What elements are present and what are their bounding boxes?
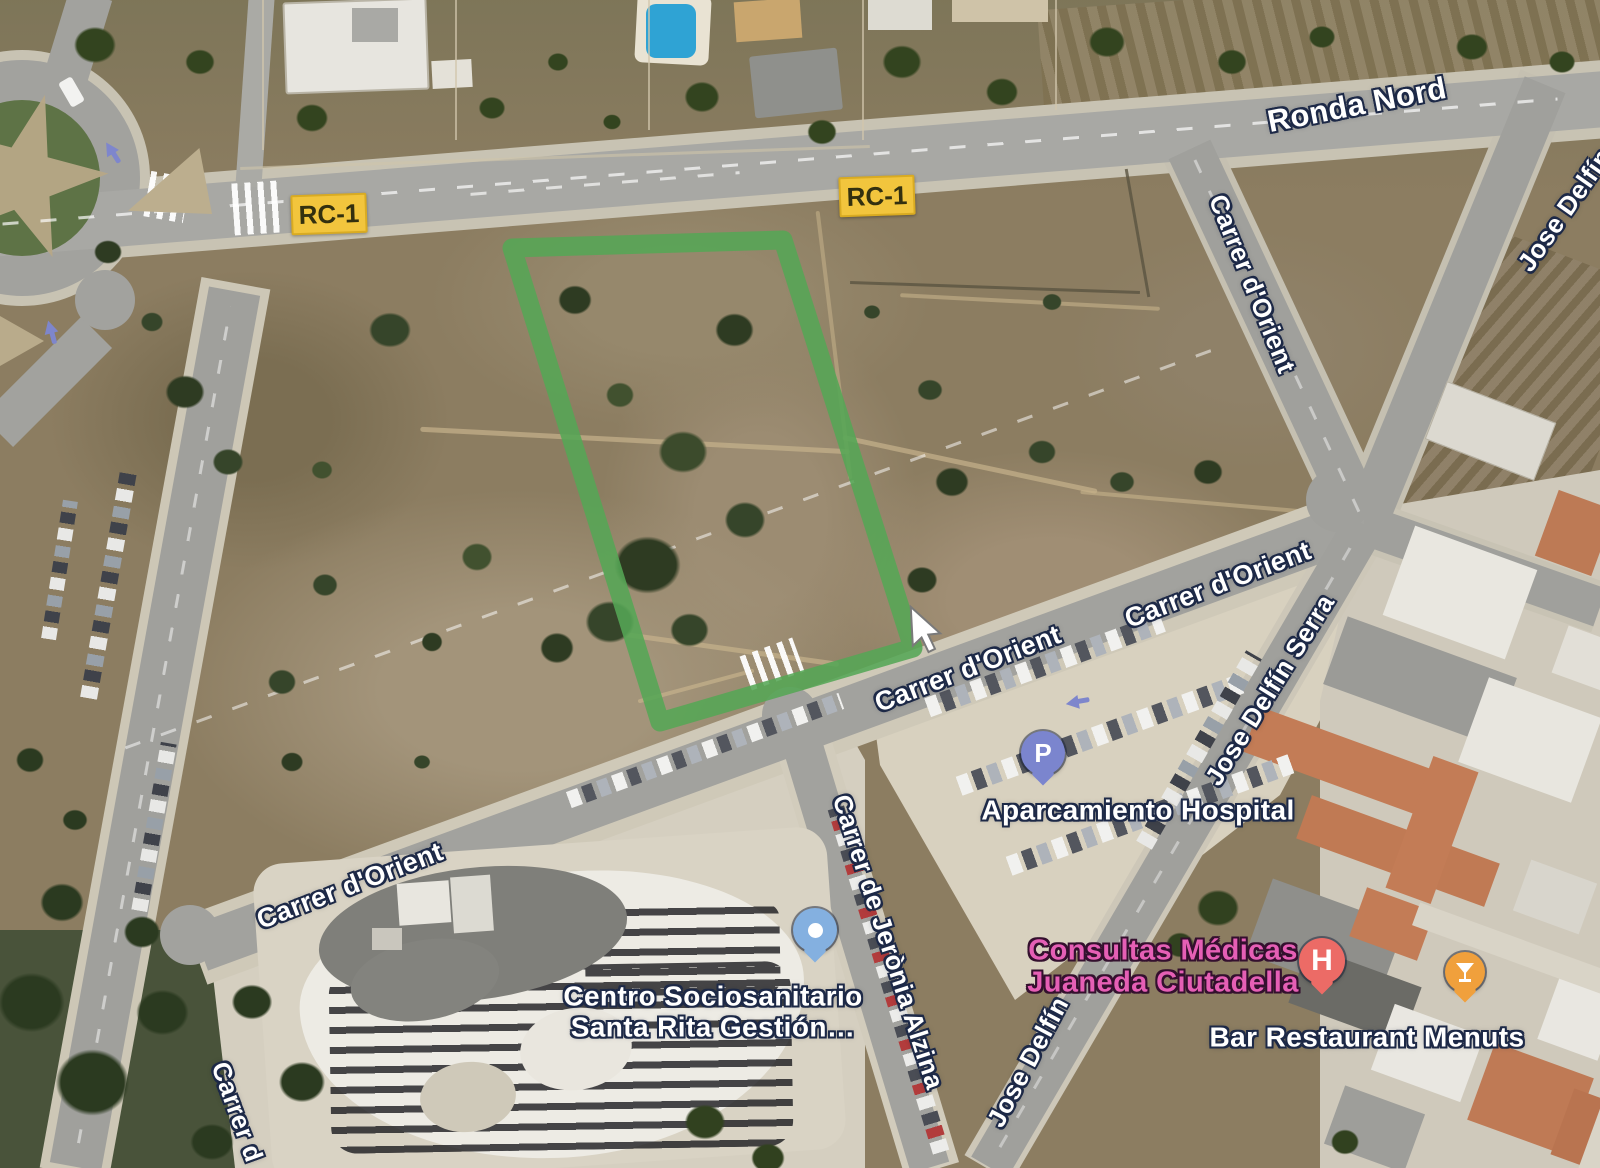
poi-label-aparcamiento-hospital[interactable]: Aparcamiento Hospital	[981, 794, 1294, 825]
poi-label-line1: Centro Sociosanitario	[563, 981, 862, 1012]
place-pin[interactable]	[793, 908, 837, 952]
route-badge-text: RC-1	[846, 179, 908, 212]
poi-label-centro-sociosanitario[interactable]: Centro Sociosanitario Santa Rita Gestión…	[563, 981, 862, 1044]
hospital-pin-letter: H	[1311, 944, 1333, 978]
mouse-cursor	[907, 603, 950, 657]
route-badge-rc1[interactable]: RC-1	[838, 175, 915, 218]
place-pin-dot	[808, 923, 823, 938]
poi-label-line2: Juaneda Ciutadella	[1027, 967, 1299, 999]
route-badge-text: RC-1	[298, 197, 360, 230]
plot-boundary[interactable]	[512, 240, 913, 722]
poi-label-line2: Santa Rita Gestión…	[563, 1012, 862, 1043]
hospital-pin[interactable]: H	[1299, 938, 1345, 984]
poi-label-bar-restaurant-menuts[interactable]: Bar Restaurant Menuts	[1210, 1021, 1525, 1052]
parking-pin[interactable]: P	[1021, 731, 1065, 775]
parking-pin-letter: P	[1034, 738, 1051, 769]
poi-label-line1: Consultas Médicas	[1027, 935, 1299, 967]
bar-pin[interactable]	[1445, 952, 1485, 992]
poi-label-consultas-medicas[interactable]: Consultas Médicas Juaneda Ciutadella	[1027, 935, 1299, 1000]
route-badge-rc1[interactable]: RC-1	[290, 193, 367, 236]
map-canvas[interactable]: Ronda Nord RC-1 RC-1 Carrer d'Orient Jos…	[0, 0, 1600, 1168]
cocktail-glass-icon	[1455, 962, 1475, 982]
